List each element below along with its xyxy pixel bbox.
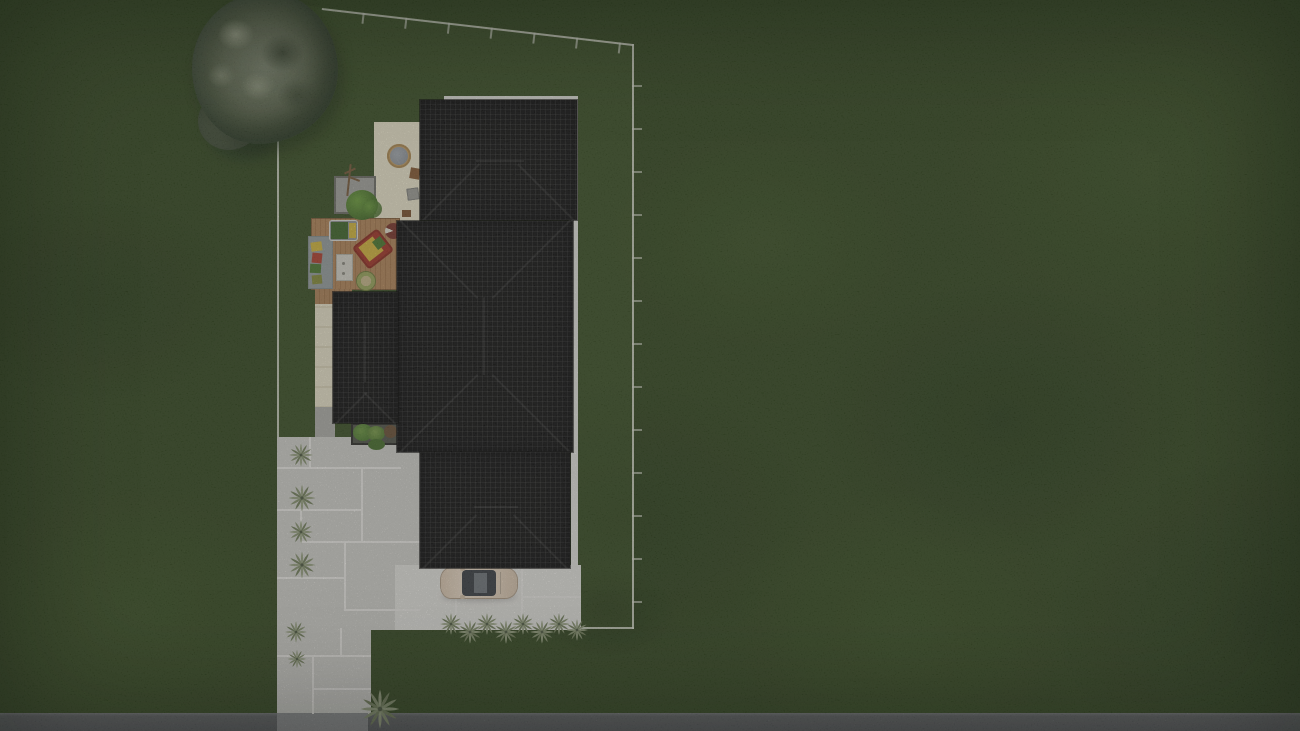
table-dish	[342, 272, 345, 275]
slab-joint	[300, 541, 420, 543]
palm-shrub	[270, 466, 302, 498]
coffee-table	[336, 254, 353, 281]
round-pouf	[357, 272, 375, 290]
street	[0, 713, 1300, 731]
dry-shrub	[384, 425, 397, 438]
boundary-ticks-right	[632, 44, 642, 628]
table-dish	[342, 262, 345, 265]
roof-main-wing	[397, 221, 573, 452]
slab-joint	[312, 655, 314, 714]
lounge-cushion	[331, 222, 348, 239]
roof-bottom-wing	[420, 452, 570, 568]
slab-joint	[309, 437, 311, 468]
boundary-line-bottom	[578, 627, 634, 629]
side-walkway	[315, 288, 335, 409]
slab-joint	[277, 577, 345, 579]
lawn-mottling	[0, 0, 1300, 731]
patio-bush-lobe	[362, 200, 382, 218]
palm-shrub	[551, 604, 577, 630]
site-plan-render	[0, 0, 1300, 731]
roof-left-small-wing	[333, 292, 398, 423]
shrub-spill	[368, 439, 385, 450]
palm-shrub	[270, 533, 302, 565]
car-roof	[474, 573, 487, 593]
lounge-pillow	[349, 223, 356, 238]
palm-shrub-large	[334, 663, 380, 709]
palm-shrub	[273, 504, 301, 532]
patio-grill-square	[406, 187, 420, 201]
walkway-gravel-strip	[315, 407, 335, 437]
slab-joint	[361, 468, 363, 541]
palm-shrub	[275, 637, 297, 659]
driveway-apron	[277, 713, 368, 731]
roof-top-wing	[420, 100, 577, 220]
pillow-green	[310, 264, 321, 274]
slab-joint	[344, 609, 420, 611]
palm-shrub	[273, 427, 301, 455]
pillow-olive	[312, 275, 323, 285]
palm-shrub	[270, 606, 296, 632]
fire-table-gravel	[390, 147, 408, 165]
slab-joint	[340, 628, 342, 656]
pillow-red	[312, 253, 323, 264]
slab-joint	[344, 541, 346, 611]
patio-wood-item	[402, 210, 411, 217]
car-trunk-line	[500, 572, 501, 594]
pillow-yellow	[310, 241, 322, 251]
car	[440, 566, 518, 602]
